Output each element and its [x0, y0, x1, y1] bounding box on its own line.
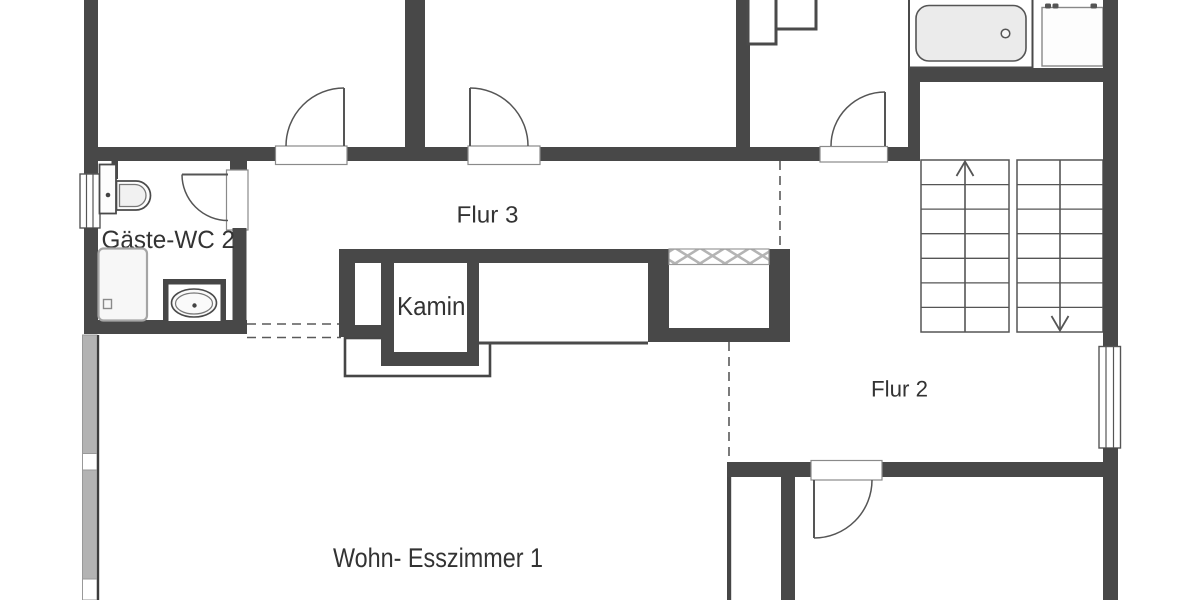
svg-text:Flur 3: Flur 3 [457, 202, 519, 228]
svg-text:Wohn- Esszimmer 1: Wohn- Esszimmer 1 [333, 543, 543, 573]
svg-text:Kamin: Kamin [397, 291, 466, 321]
svg-text:Flur 2: Flur 2 [871, 377, 928, 402]
